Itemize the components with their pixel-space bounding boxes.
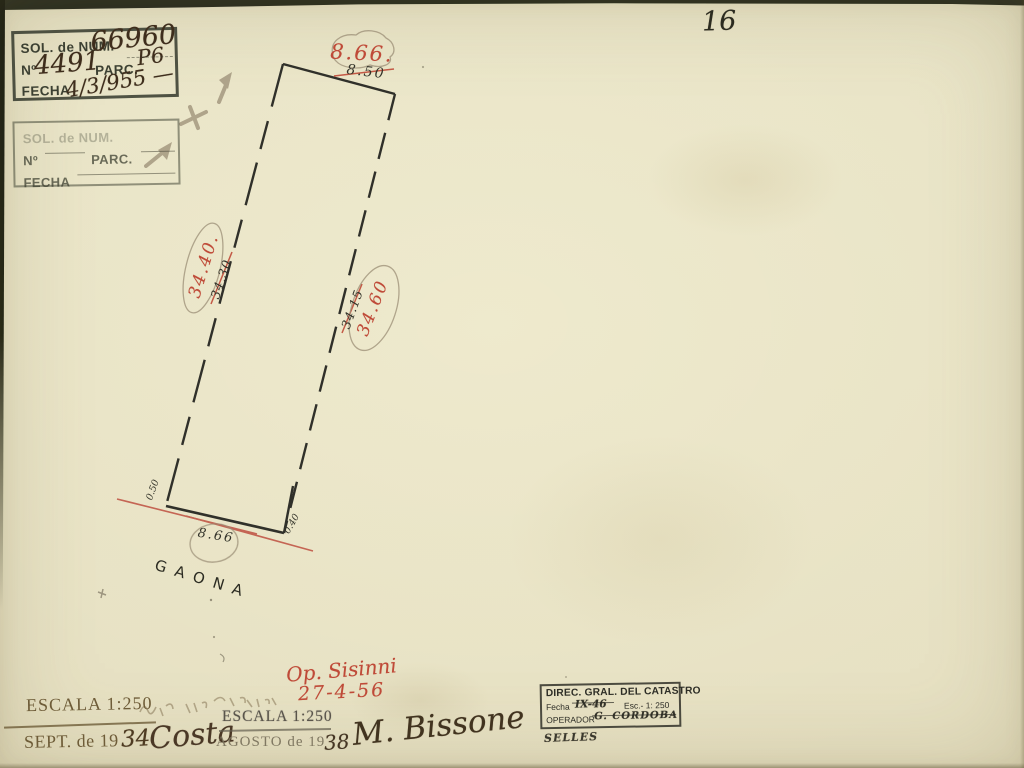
fecha-leader-blank xyxy=(77,173,175,176)
catastro-fecha-value: IX-46 xyxy=(575,698,607,711)
pencil-cross-stroke-b xyxy=(190,107,198,128)
page-number: 16 xyxy=(701,5,736,37)
escala-1938-rule xyxy=(219,728,331,732)
signature-1938: M. Bissone xyxy=(351,699,527,753)
dim-offset-right: 0.40 xyxy=(282,512,302,536)
scan-edge-right xyxy=(1020,0,1024,768)
paper-vignette xyxy=(0,0,1024,768)
escala-1934: ESCALA 1:250 xyxy=(26,693,153,716)
selles-note: SELLES xyxy=(544,730,599,745)
scan-edge-top xyxy=(0,0,1024,10)
pencil-arrow-1 xyxy=(219,80,228,102)
scanned-survey-sheet: 16 SOL. de NUM. 66960 Nº 4491 PARC. P6 F… xyxy=(0,0,1024,768)
catastro-stamp: DIREC. GRAL. DEL CATASTRO Fecha IX-46 Es… xyxy=(540,682,682,729)
catastro-fecha-label: Fecha xyxy=(546,702,570,712)
sol-num-stamp-blank: SOL. de NUM. Nº PARC. FECHA xyxy=(12,119,180,188)
escala-1938: ESCALA 1:250 xyxy=(222,708,333,726)
date-1938-prefix: AGOSTO de 19 xyxy=(216,734,325,751)
date-1934-prefix: SEPT. de 19 xyxy=(24,730,119,753)
dim-rear: 8.66 xyxy=(197,526,236,547)
parc-label-blank: PARC. xyxy=(91,151,133,167)
pencil-cross-stroke-a xyxy=(181,112,206,124)
parc-leader-blank xyxy=(141,151,175,153)
dim-offset-left: 0.50 xyxy=(144,478,162,502)
scan-edge-bottom xyxy=(0,763,1024,768)
sol-num-label-blank: SOL. de NUM. xyxy=(23,130,114,147)
no-leader-blank xyxy=(45,152,85,154)
scan-edge-left xyxy=(0,0,5,610)
date-1934-year: 34 xyxy=(120,725,151,752)
street-name: GAONA xyxy=(153,556,254,602)
no-label-blank: Nº xyxy=(23,153,38,168)
pencil-arrowhead-1 xyxy=(219,72,232,89)
fecha-label-blank: FECHA xyxy=(23,174,70,190)
catastro-operador-label: OPERADOR xyxy=(546,714,595,725)
fecha-label: FECHA xyxy=(21,83,70,99)
sol-num-stamp-filled: SOL. de NUM. 66960 Nº 4491 PARC. P6 FECH… xyxy=(11,27,179,101)
catastro-title: DIREC. GRAL. DEL CATASTRO xyxy=(546,685,701,699)
plan-drawing xyxy=(0,0,1024,768)
operator-annotation-date: 27-4-56 xyxy=(297,679,385,706)
dim-front-old: 8.50 xyxy=(346,62,387,83)
date-1938-year: 38 xyxy=(323,729,350,755)
